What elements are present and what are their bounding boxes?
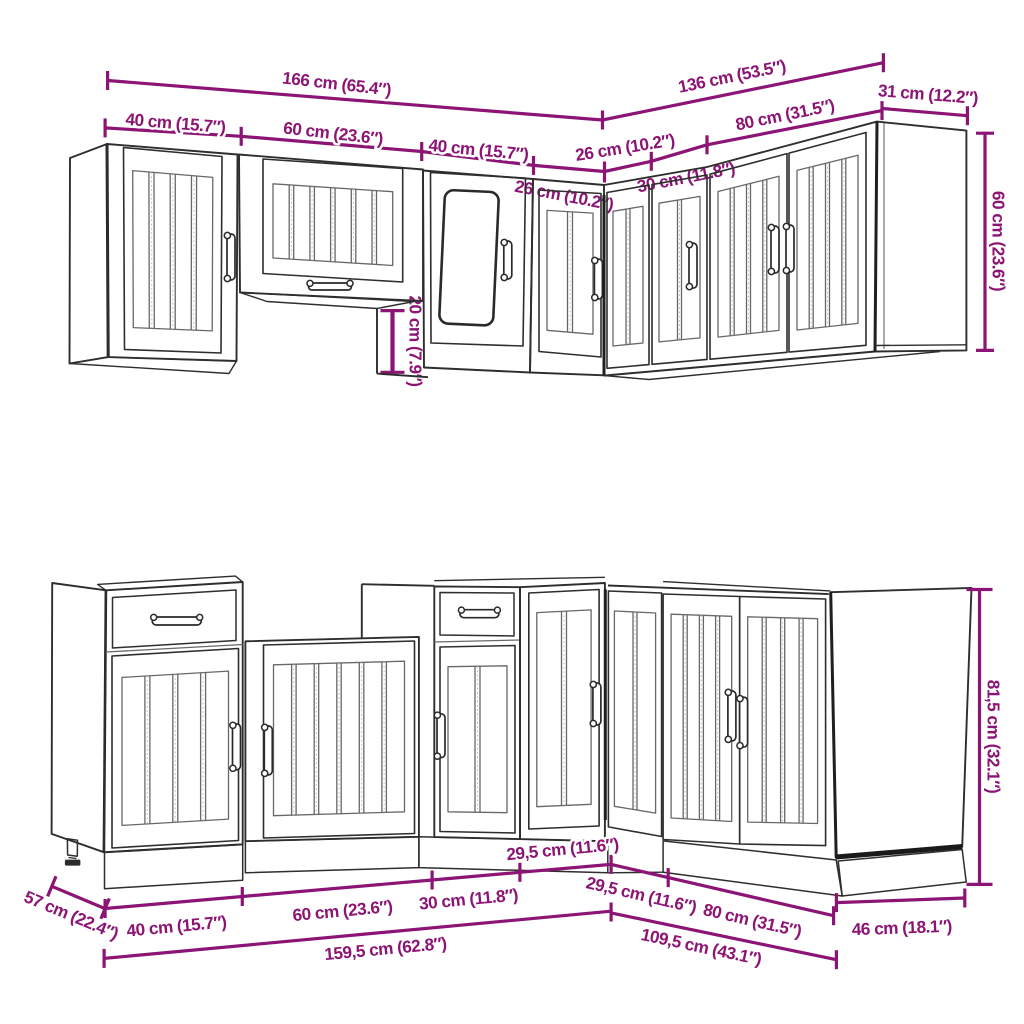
svg-text:20 cm (7.9″): 20 cm (7.9″) — [406, 295, 426, 386]
svg-text:81,5 cm (32.1″): 81,5 cm (32.1″) — [984, 680, 1004, 793]
svg-text:46 cm (18.1″): 46 cm (18.1″) — [851, 916, 952, 939]
svg-text:60 cm (23.6″): 60 cm (23.6″) — [989, 191, 1009, 291]
